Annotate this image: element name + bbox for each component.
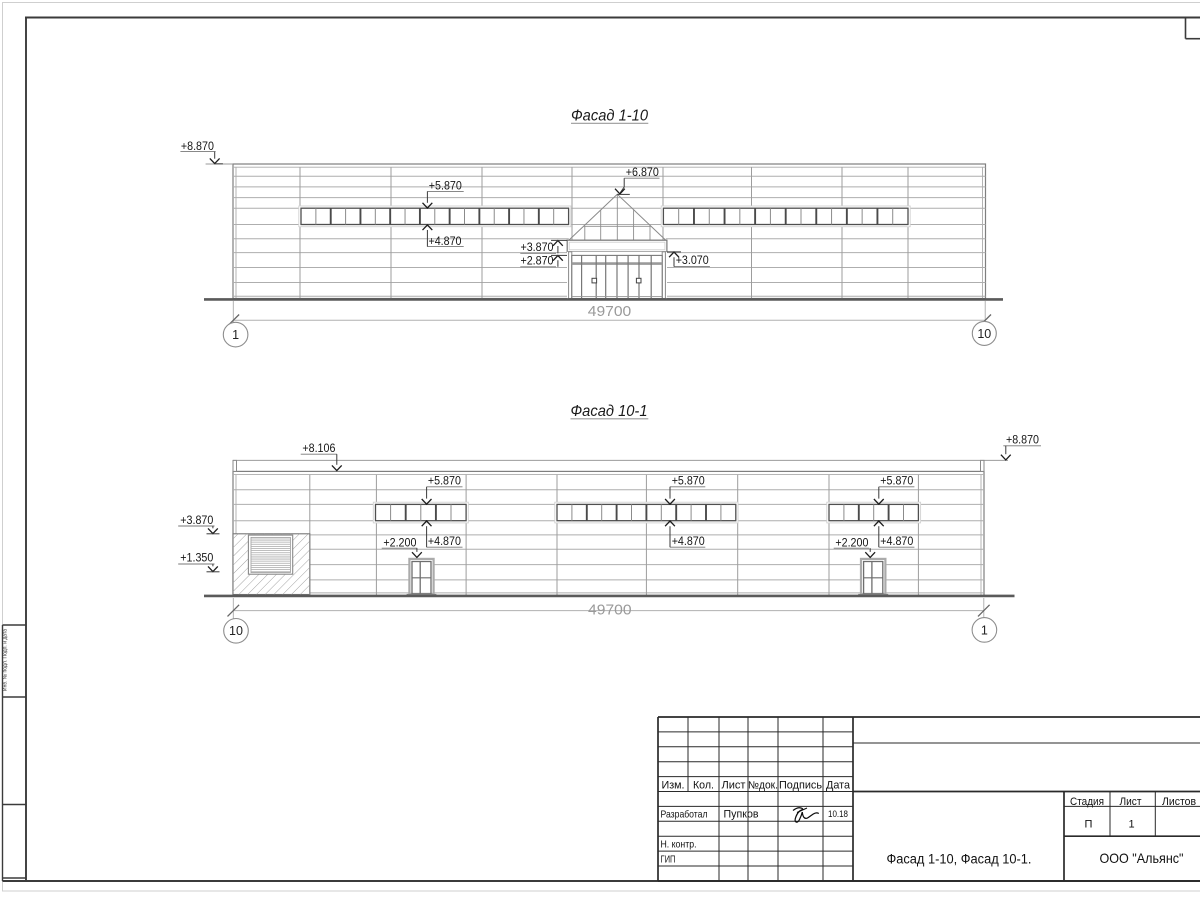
svg-text:+6.870: +6.870 [626,165,659,179]
svg-text:+4.870: +4.870 [428,534,461,548]
svg-text:+3.870: +3.870 [521,240,554,254]
svg-text:№док.: №док. [748,779,778,791]
svg-text:+3.070: +3.070 [676,253,709,267]
svg-text:Стадия: Стадия [1070,796,1104,808]
svg-text:+5.870: +5.870 [880,473,913,487]
svg-text:Дата: Дата [826,779,850,791]
svg-text:Н. контр.: Н. контр. [661,839,697,850]
svg-text:Кол.: Кол. [693,779,714,791]
svg-text:Подпись: Подпись [779,779,822,791]
svg-text:+5.870: +5.870 [672,473,705,487]
svg-text:Изм.: Изм. [662,779,685,791]
svg-text:+1.350: +1.350 [180,551,213,565]
svg-text:+5.870: +5.870 [428,473,461,487]
svg-text:Инв. № подл. Подп. и дата: Инв. № подл. Подп. и дата [3,629,9,691]
svg-text:+2.200: +2.200 [383,535,416,549]
svg-text:Фасад 1-10, Фасад 10-1.: Фасад 1-10, Фасад 10-1. [887,852,1032,868]
svg-text:+4.870: +4.870 [429,234,462,248]
svg-text:49700: 49700 [588,304,632,320]
svg-text:+2.200: +2.200 [835,535,868,549]
svg-text:+8.870: +8.870 [181,139,214,153]
svg-text:+8.106: +8.106 [302,441,335,455]
svg-text:Разработал: Разработал [661,809,708,821]
svg-text:Фасад 1-10: Фасад 1-10 [571,108,648,125]
svg-text:1: 1 [981,623,988,637]
svg-text:+4.870: +4.870 [672,534,705,548]
svg-text:10.18: 10.18 [828,809,848,820]
svg-text:+5.870: +5.870 [429,179,462,193]
svg-text:+3.870: +3.870 [180,513,213,527]
svg-text:1: 1 [1128,818,1134,830]
svg-text:+8.870: +8.870 [1006,432,1039,446]
svg-text:49700: 49700 [588,603,632,619]
svg-text:+2.870: +2.870 [521,254,554,268]
svg-text:ООО "Альянс": ООО "Альянс" [1100,851,1184,866]
svg-text:Лист: Лист [1120,796,1142,808]
svg-text:10: 10 [977,327,991,341]
svg-text:10: 10 [229,624,243,638]
svg-text:1: 1 [232,328,239,342]
svg-text:Лист: Лист [722,779,746,791]
svg-text:Фасад 10-1: Фасад 10-1 [571,403,648,420]
svg-text:+4.870: +4.870 [880,534,913,548]
svg-text:ГИП: ГИП [661,854,676,865]
svg-text:П: П [1085,818,1093,830]
svg-text:Пупков: Пупков [724,808,759,820]
svg-text:Листов: Листов [1162,796,1196,808]
